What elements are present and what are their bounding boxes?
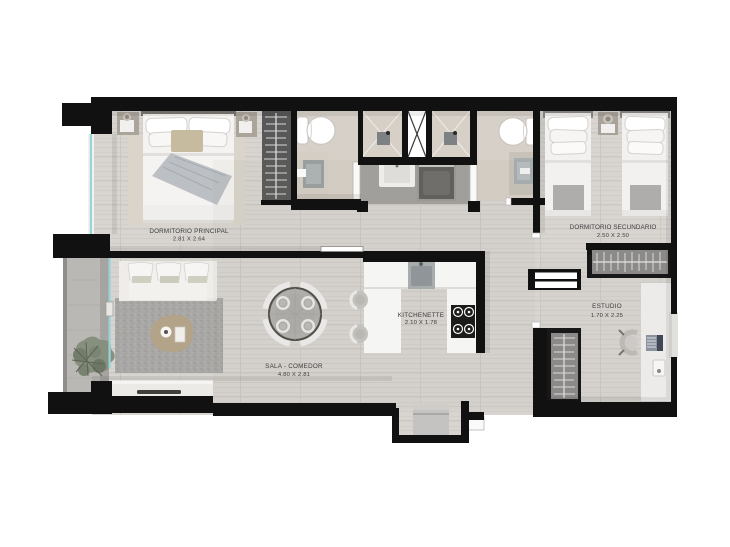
svg-text:1.70 X 2.25: 1.70 X 2.25 xyxy=(591,313,624,319)
svg-text:KITCHENETTE: KITCHENETTE xyxy=(398,312,444,319)
svg-text:DORMITORIO SECUNDARIO: DORMITORIO SECUNDARIO xyxy=(570,224,657,231)
svg-text:4.80 X 2.81: 4.80 X 2.81 xyxy=(278,372,310,378)
svg-text:2.81 X 2.64: 2.81 X 2.64 xyxy=(173,237,206,243)
svg-text:ESTUDIO: ESTUDIO xyxy=(592,303,622,310)
svg-text:2.50 X 2.50: 2.50 X 2.50 xyxy=(597,233,630,239)
svg-text:DORMITORIO PRINCIPAL: DORMITORIO PRINCIPAL xyxy=(149,228,229,235)
svg-text:SALA - COMEDOR: SALA - COMEDOR xyxy=(265,363,323,370)
svg-text:2.10 X 1.78: 2.10 X 1.78 xyxy=(405,320,438,326)
